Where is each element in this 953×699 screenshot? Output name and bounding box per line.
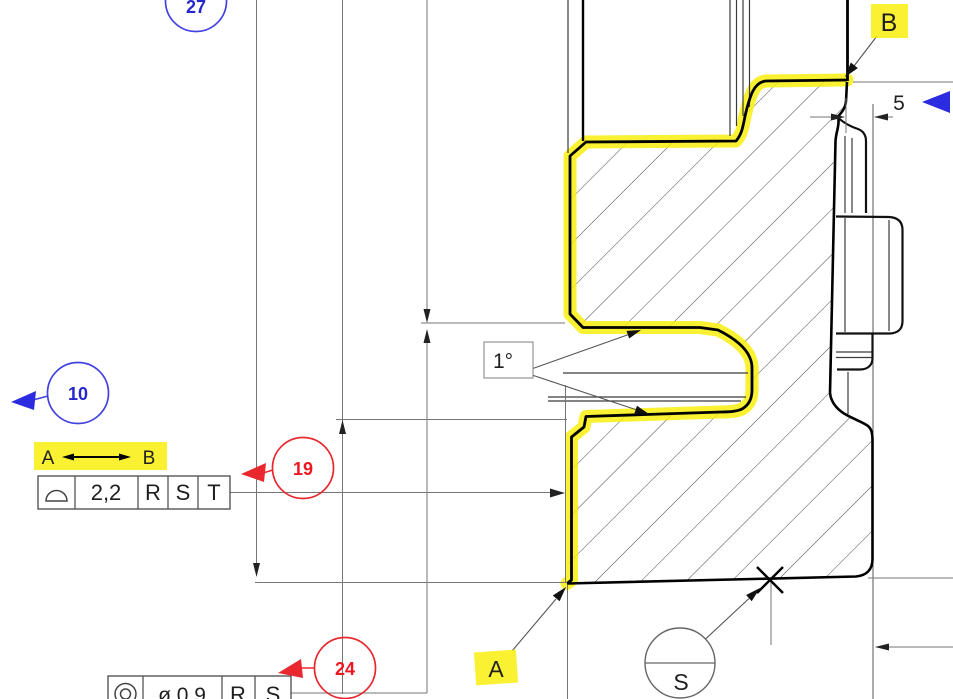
arrow-down-icon xyxy=(424,309,431,323)
balloon-10[interactable]: 10 xyxy=(11,363,109,424)
datum-target-s[interactable]: S xyxy=(645,567,783,698)
offscreen-balloon-arrow-icon[interactable] xyxy=(922,91,950,113)
between-to-label: B xyxy=(143,448,156,469)
arrow-left-icon xyxy=(874,114,888,121)
fcf-datum-3: T xyxy=(207,480,220,505)
balloon-24-number: 24 xyxy=(335,659,355,679)
datum-flag-b-label: B xyxy=(881,9,898,37)
cad-drawing-canvas: 1° 5 B A S A B xyxy=(0,0,953,699)
flange-tab-large xyxy=(836,217,903,334)
balloon-19[interactable]: 19 xyxy=(241,438,334,499)
between-from-label: A xyxy=(42,448,55,469)
fcf-datum-1: R xyxy=(230,682,246,699)
arrow-left-icon xyxy=(875,644,889,651)
balloon-27[interactable]: 27 xyxy=(166,0,227,32)
arrow-icon xyxy=(553,587,566,601)
balloon-10-number: 10 xyxy=(68,384,88,404)
datum-flag-b[interactable]: B xyxy=(845,4,908,77)
fcf-datum-1: R xyxy=(145,480,161,505)
dim-5-value[interactable]: 5 xyxy=(893,92,905,115)
fcf-tolerance-value: ø 0,9 xyxy=(158,684,206,699)
datum-flag-a[interactable]: A xyxy=(474,587,566,685)
cad-drawing-view: 1° 5 B A S A B xyxy=(0,0,953,699)
balloon-24[interactable]: 24 xyxy=(278,638,376,699)
arrow-down-icon xyxy=(253,563,260,577)
between-a-b-note[interactable]: A B xyxy=(34,442,167,470)
fcf-surface-profile[interactable]: 2,2 R S T xyxy=(38,476,230,509)
balloon-arrow-left-icon xyxy=(241,463,266,482)
balloon-27-number: 27 xyxy=(186,0,206,17)
fcf-concentricity[interactable]: ø 0,9 R S xyxy=(108,676,291,699)
arrow-up-icon xyxy=(424,329,431,343)
balloon-arrow-left-icon xyxy=(278,659,303,678)
arrow-right-icon xyxy=(550,489,565,498)
datum-target-s-label: S xyxy=(673,669,688,695)
datum-flag-a-label: A xyxy=(488,656,504,682)
arrow-upper-icon xyxy=(627,330,642,339)
fcf-tolerance-value: 2,2 xyxy=(91,480,122,505)
balloon-19-number: 19 xyxy=(293,459,313,479)
arrow-up-icon xyxy=(339,420,346,434)
fcf-datum-2: S xyxy=(176,480,191,505)
fcf-datum-2: S xyxy=(266,682,281,699)
angle-value: 1° xyxy=(493,350,513,373)
balloon-arrow-left-icon xyxy=(11,391,36,410)
